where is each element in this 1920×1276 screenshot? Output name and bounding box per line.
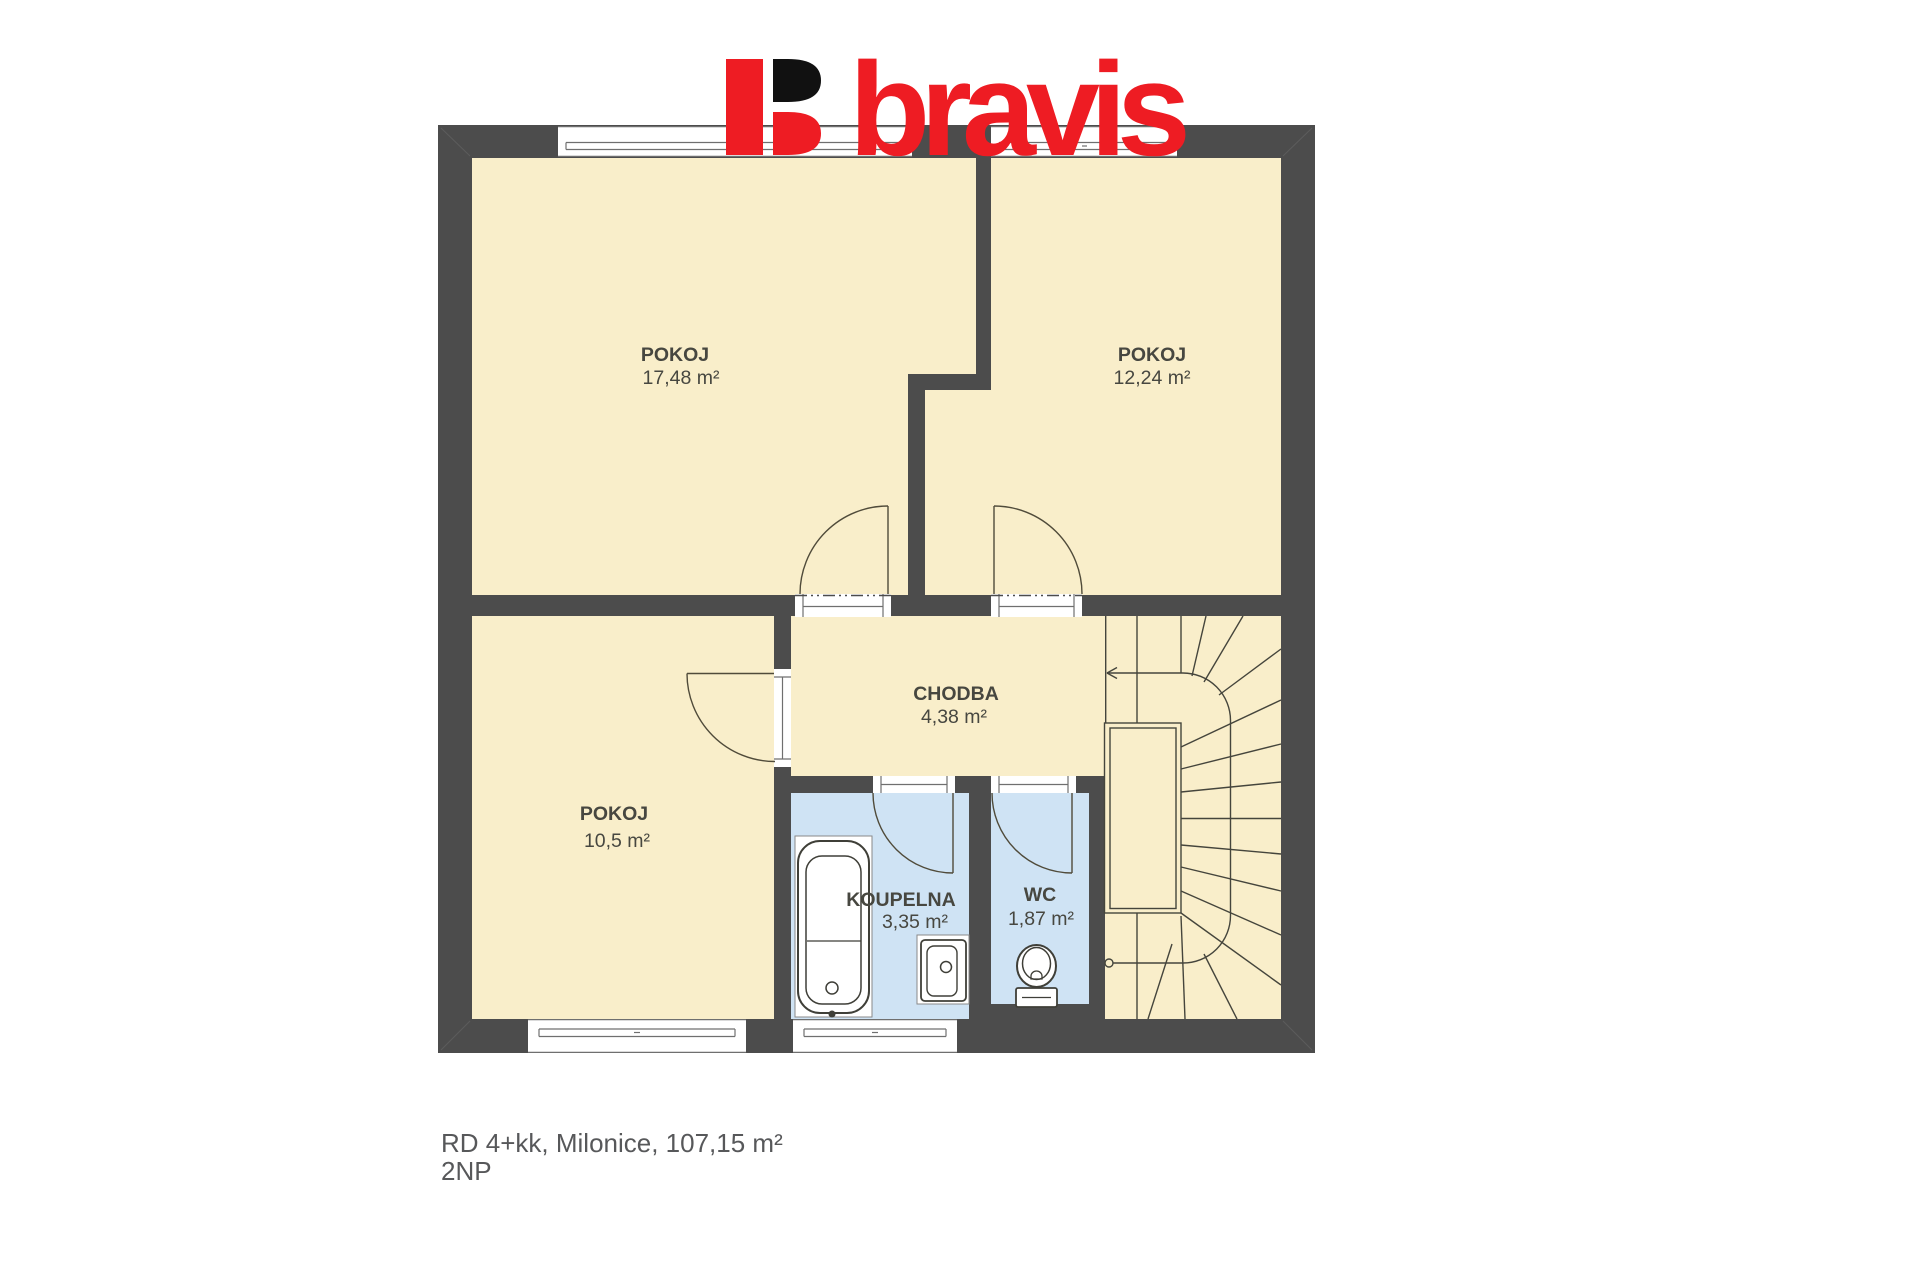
svg-text:RD 4+kk, Milonice, 107,15 m²: RD 4+kk, Milonice, 107,15 m² (441, 1128, 783, 1158)
svg-text:bravis: bravis (849, 36, 1186, 184)
svg-text:2NP: 2NP (441, 1156, 492, 1186)
svg-text:1,87 m²: 1,87 m² (1008, 908, 1075, 930)
svg-text:KOUPELNA: KOUPELNA (846, 889, 955, 911)
svg-text:3,35 m²: 3,35 m² (882, 911, 949, 933)
svg-text:CHODBA: CHODBA (913, 683, 999, 705)
svg-text:17,48 m²: 17,48 m² (643, 367, 720, 389)
svg-text:4,38 m²: 4,38 m² (921, 706, 988, 728)
svg-text:POKOJ: POKOJ (580, 803, 648, 825)
svg-text:WC: WC (1024, 884, 1057, 906)
svg-text:12,24 m²: 12,24 m² (1114, 367, 1191, 389)
svg-text:POKOJ: POKOJ (1118, 344, 1186, 366)
svg-text:POKOJ: POKOJ (641, 344, 709, 366)
svg-text:10,5 m²: 10,5 m² (584, 830, 651, 852)
